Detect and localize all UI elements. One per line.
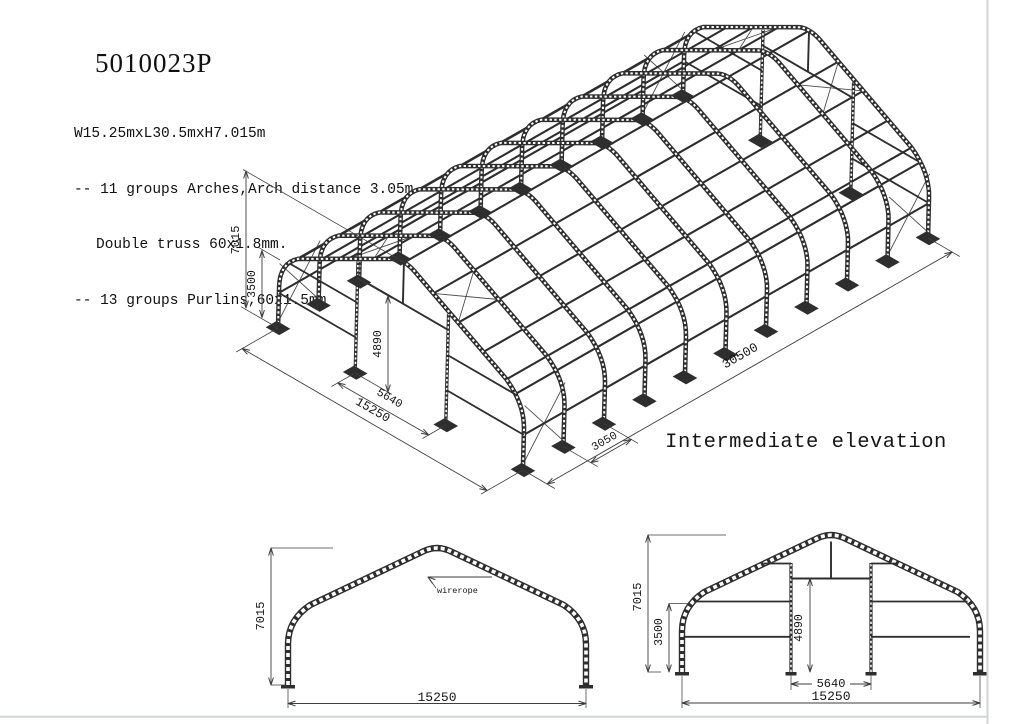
- dimension-label: 3500: [246, 270, 259, 298]
- dimension-end-door-height-4890: 4890: [793, 579, 812, 673]
- iso-view-label: Intermediate elevation: [665, 431, 947, 454]
- rear-gable-frame: [684, 30, 929, 203]
- side-elevation-view: wirerope701515250: [254, 548, 593, 708]
- dimension-label: 7015: [229, 226, 243, 255]
- view-title: Intermediate elevation: [665, 431, 947, 454]
- dimension-leg-3500: 3500: [246, 247, 280, 317]
- drawing-page: 5010023P W15.25mxL30.5mxH7.015m -- 11 gr…: [0, 0, 1024, 724]
- dimension-label: 7015: [631, 583, 645, 612]
- dimension-label: 4890: [793, 614, 806, 642]
- dimension-label: 4890: [372, 330, 385, 358]
- dimension-label: 3500: [653, 618, 666, 646]
- dimension-label: 7015: [254, 602, 268, 631]
- dimension-bay-3050: 3050: [564, 424, 639, 467]
- dimension-label: 15250: [811, 689, 850, 704]
- technical-drawing-canvas: 701535004890564015250305030500Intermedia…: [0, 0, 1024, 724]
- dimension-door-width-5640: 5640: [332, 373, 447, 439]
- end-elevation-view: 701535004890564015250: [631, 535, 987, 708]
- dimension-side-span-15250: 15250: [288, 689, 586, 708]
- dimension-label: 15250: [417, 690, 456, 705]
- wirerope-annotation: wirerope: [428, 577, 492, 596]
- annotation-label: wirerope: [437, 586, 478, 596]
